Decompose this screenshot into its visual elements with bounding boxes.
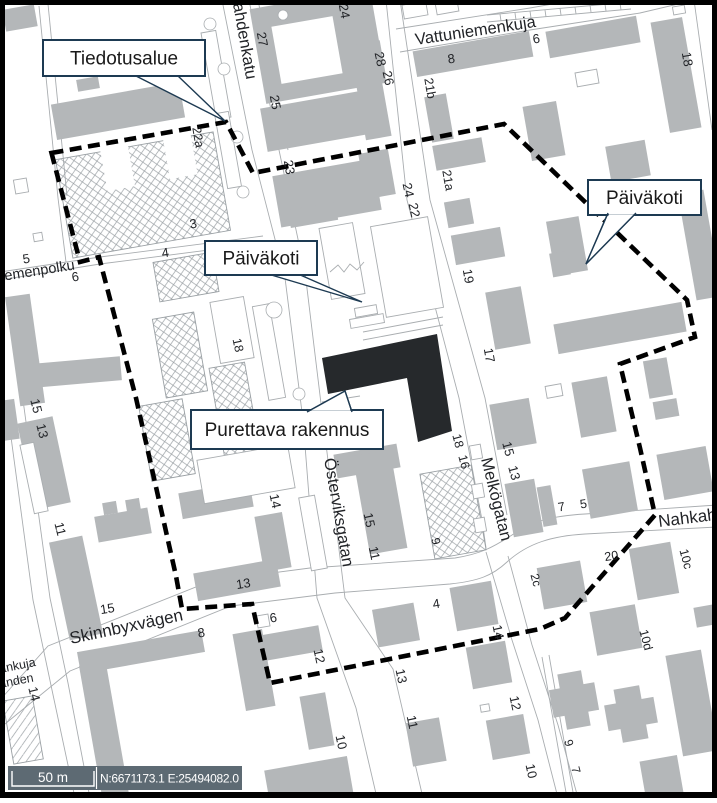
svg-text:10: 10 <box>523 762 541 779</box>
svg-text:17: 17 <box>481 347 498 364</box>
svg-text:19: 19 <box>460 268 477 285</box>
svg-text:50 m: 50 m <box>38 770 68 785</box>
svg-text:14: 14 <box>267 492 285 509</box>
svg-text:Päiväkoti: Päiväkoti <box>606 188 683 209</box>
svg-text:26: 26 <box>380 69 398 86</box>
svg-text:12: 12 <box>311 647 329 664</box>
svg-text:15: 15 <box>361 511 379 528</box>
svg-text:18: 18 <box>230 337 247 354</box>
svg-text:22: 22 <box>406 201 424 218</box>
svg-text:18: 18 <box>679 51 696 68</box>
svg-text:23: 23 <box>281 159 298 176</box>
svg-text:10: 10 <box>333 733 351 750</box>
svg-text:Tiedotusalue: Tiedotusalue <box>70 49 178 70</box>
svg-text:N:6671173.1 E:25494082.0: N:6671173.1 E:25494082.0 <box>100 772 239 786</box>
svg-text:Purettava rakennus: Purettava rakennus <box>205 420 370 441</box>
svg-text:15: 15 <box>99 600 116 617</box>
svg-text:13: 13 <box>235 575 252 592</box>
svg-text:27: 27 <box>254 31 271 48</box>
svg-text:20: 20 <box>603 548 619 564</box>
svg-text:13: 13 <box>393 667 411 684</box>
svg-text:14: 14 <box>490 623 508 640</box>
svg-text:Päiväkoti: Päiväkoti <box>222 249 299 270</box>
svg-text:28: 28 <box>372 50 390 67</box>
svg-text:25: 25 <box>267 94 284 111</box>
svg-text:24: 24 <box>400 181 418 198</box>
svg-text:12: 12 <box>507 694 525 711</box>
svg-text:24: 24 <box>336 3 353 20</box>
